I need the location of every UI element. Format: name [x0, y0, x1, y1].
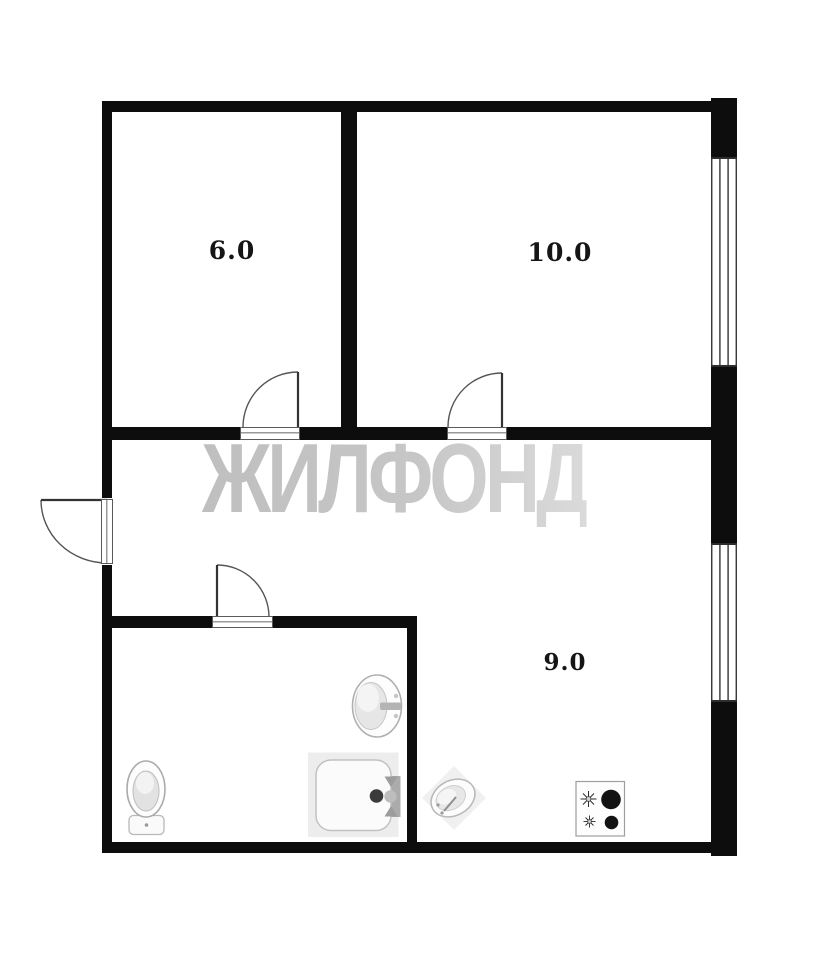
door-sill-entrance — [101, 499, 113, 564]
room-label-top-left: 6.0 — [192, 236, 272, 265]
floor-plan: ЖИЛФОНД — [0, 0, 817, 960]
door-sill-room-top-right — [447, 427, 507, 440]
door-room-top-left — [243, 372, 298, 427]
door-room-top-right — [448, 373, 502, 427]
bathroom-sink-icon — [353, 675, 402, 737]
door-entrance — [41, 500, 107, 563]
stove-icon — [576, 782, 625, 837]
room-label-kitchen: 9.0 — [525, 649, 605, 676]
door-sill-room-top-left — [240, 427, 300, 440]
toilet-icon — [127, 761, 165, 835]
kitchen-sink-icon — [422, 766, 486, 830]
door-bathroom — [217, 565, 269, 617]
door-sill-bathroom — [212, 616, 273, 628]
room-label-top-right: 10.0 — [520, 238, 600, 267]
bathtub-icon — [308, 753, 401, 838]
